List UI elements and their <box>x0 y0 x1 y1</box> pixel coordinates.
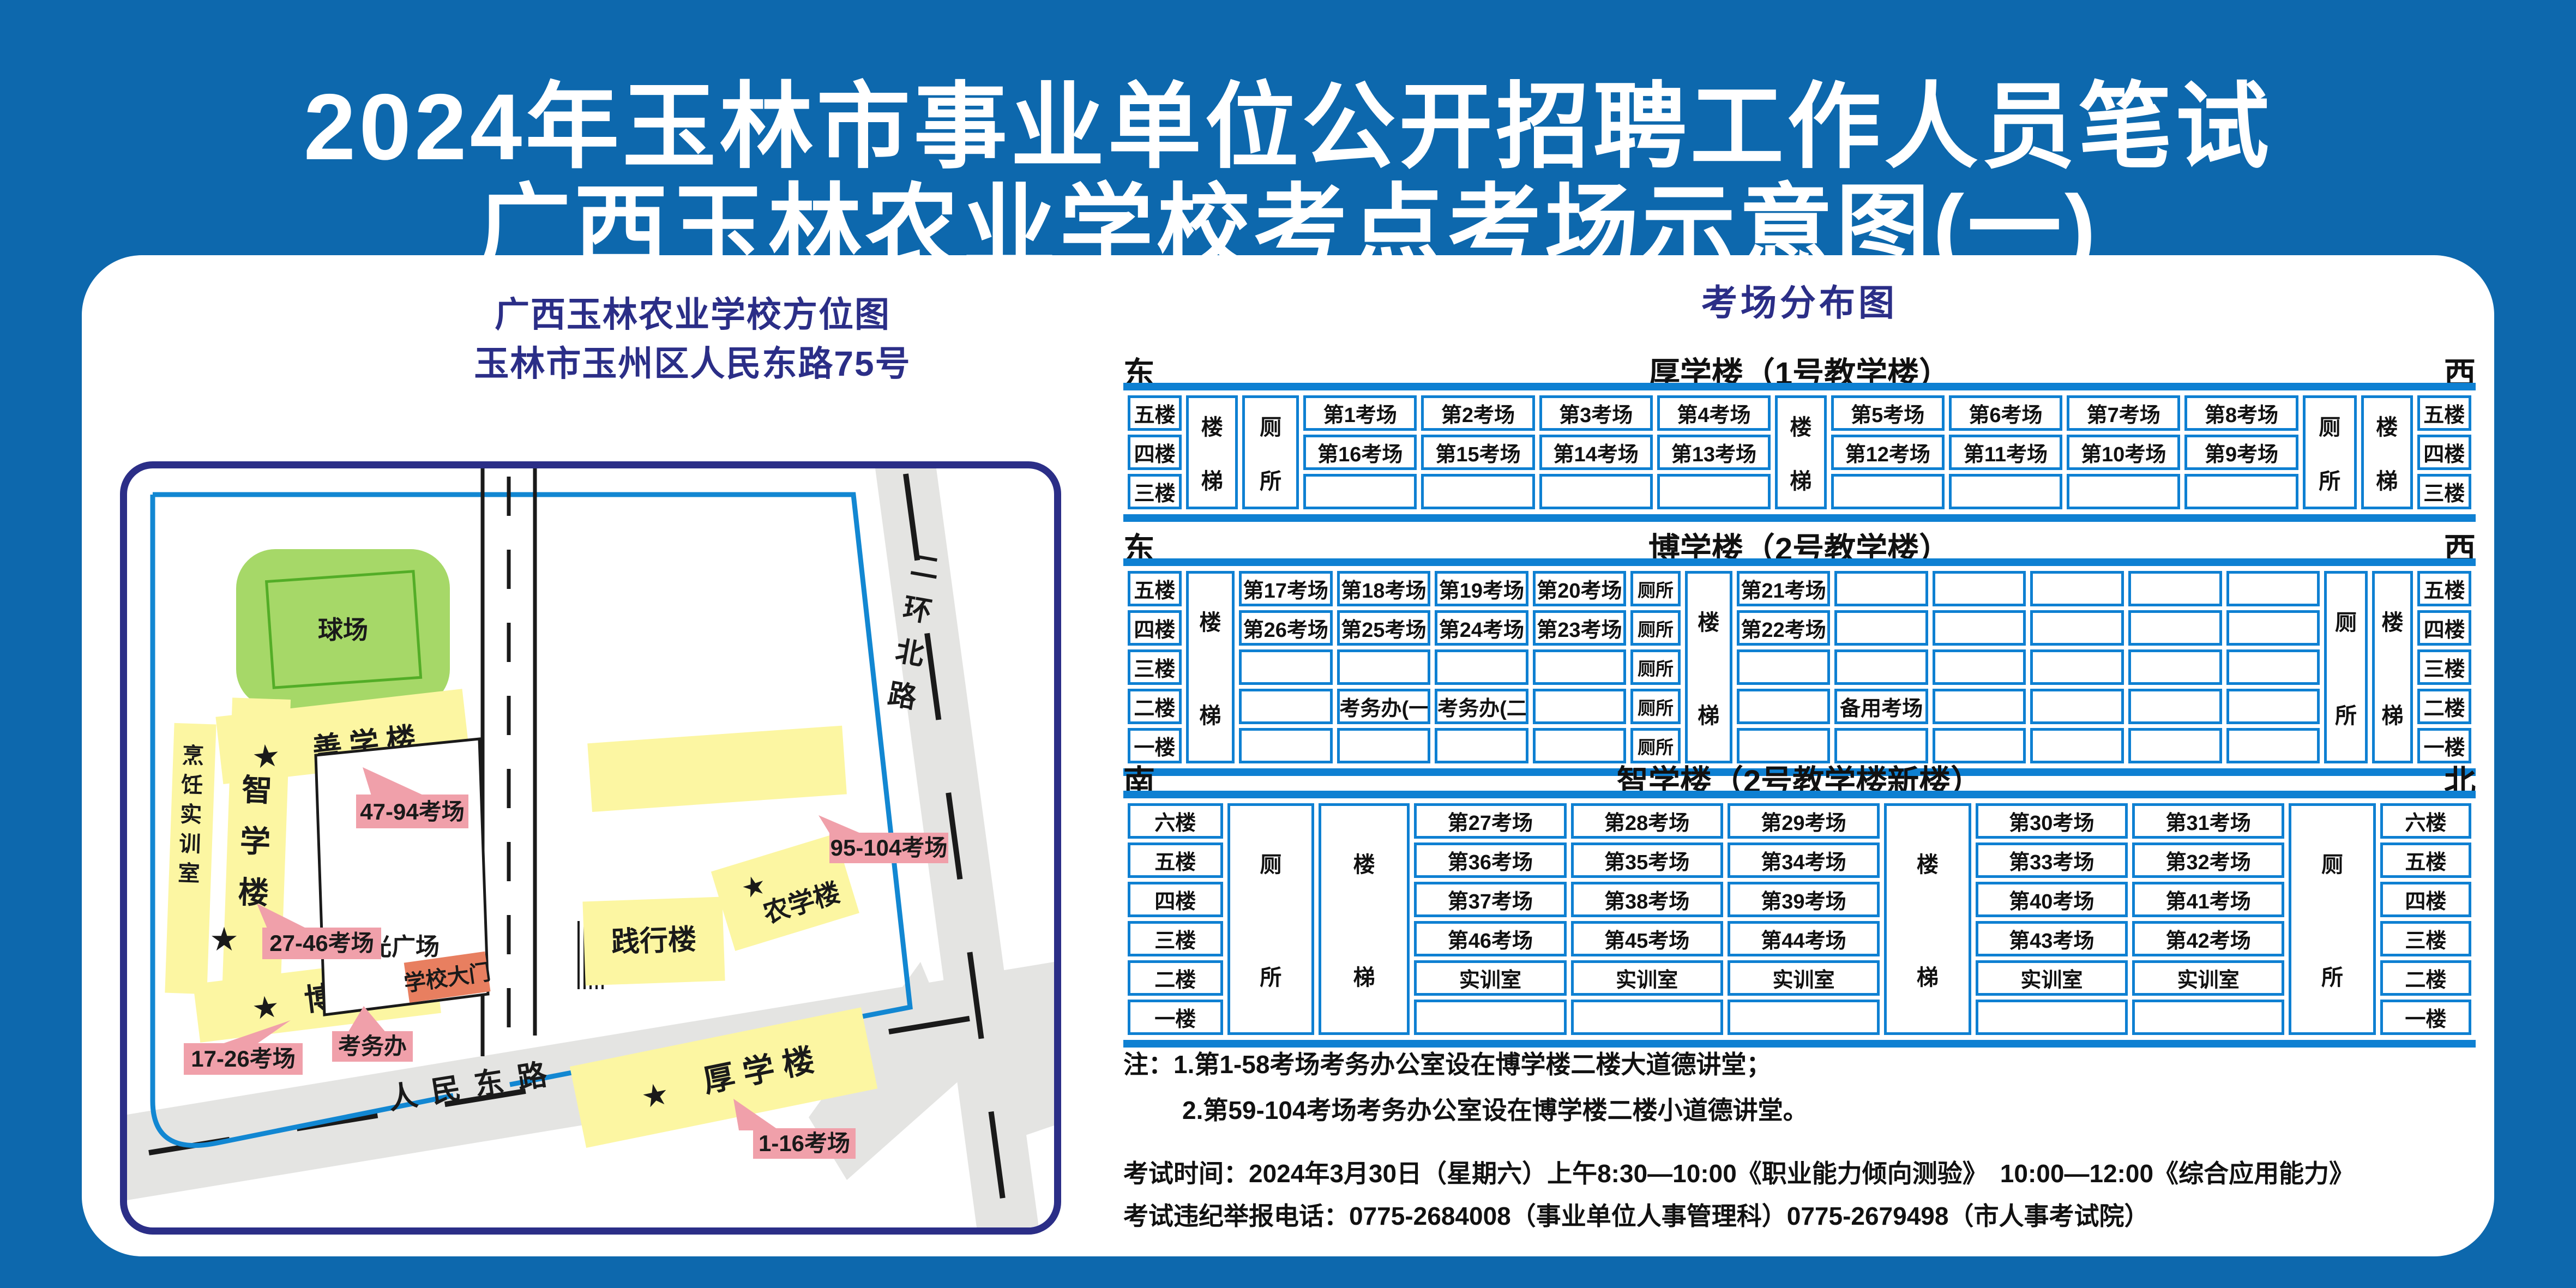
svg-text:1-16考场: 1-16考场 <box>759 1130 850 1156</box>
table-cell: 第5考场 <box>1831 395 1945 431</box>
table-cell: 第35考场 <box>1571 842 1723 878</box>
table-cell: 四楼 <box>1128 610 1182 646</box>
table-3-grid: 六楼厕所楼梯第27考场第28考场第29考场楼梯第30考场第31考场厕所六楼五楼第… <box>1123 791 2476 1048</box>
table-cell <box>2226 689 2320 724</box>
table-cell: 第14考场 <box>1539 435 1653 470</box>
table-cell: 第46考场 <box>1414 921 1566 956</box>
table-cell: 第38考场 <box>1571 882 1723 917</box>
table-cell: 第30考场 <box>1976 803 2128 839</box>
table-cell <box>2132 1000 2284 1035</box>
table-cell: 三楼 <box>1128 474 1182 509</box>
content-panel: 广西玉林农业学校方位图 玉林市玉州区人民东路75号 <box>82 255 2494 1256</box>
table-cell <box>1976 1000 2128 1035</box>
table-cell: 第3考场 <box>1539 395 1653 431</box>
table-cell: 第11考场 <box>1949 435 2062 470</box>
table-cell: 实训室 <box>1571 960 1723 996</box>
table-cell: 一楼 <box>1128 1000 1223 1035</box>
table-cell <box>1539 474 1653 509</box>
table-cell <box>1337 649 1431 685</box>
table-cell: 第34考场 <box>1728 842 1880 878</box>
table-cell <box>1414 1000 1566 1035</box>
table-cell <box>1239 689 1333 724</box>
table-cell: 楼梯 <box>2361 395 2413 509</box>
table-cell: 第2考场 <box>1421 395 1534 431</box>
table-cell <box>2030 610 2124 646</box>
jianxing-building: 践行楼 <box>582 897 725 986</box>
table-cell: 第37考场 <box>1414 882 1566 917</box>
table-cell: 第27考场 <box>1414 803 1566 839</box>
svg-text:47-94考场: 47-94考场 <box>360 799 464 824</box>
table-cell: 厕所 <box>2289 803 2376 1035</box>
table-cell: 三楼 <box>1128 921 1223 956</box>
table-cell: 第21考场 <box>1737 571 1831 606</box>
table-cell: 第6考场 <box>1949 395 2062 431</box>
table-cell: 楼梯 <box>1775 395 1827 509</box>
table-cell: 第10考场 <box>2067 435 2180 470</box>
table-cell: 实训室 <box>2132 960 2284 996</box>
table-cell: 实训室 <box>1414 960 1566 996</box>
table-cell: 第33考场 <box>1976 842 2128 878</box>
table-cell: 楼梯 <box>1186 395 1238 509</box>
table-cell: 第40考场 <box>1976 882 2128 917</box>
table-cell: 一楼 <box>2380 1000 2471 1035</box>
shanxue-star-icon: ★ <box>250 737 282 775</box>
table-cell <box>1737 649 1831 685</box>
exam-time-line: 考试时间：2024年3月30日（星期六）上午8:30—10:00《职业能力倾向测… <box>1123 1154 2476 1190</box>
table-cell: 第44考场 <box>1728 921 1880 956</box>
table-cell: 三楼 <box>2417 649 2471 685</box>
ball-field-label: 球场 <box>318 616 368 644</box>
table-cell: 三楼 <box>2417 474 2471 509</box>
table-1-grid: 五楼楼梯厕所第1考场第2考场第3考场第4考场楼梯第5考场第6考场第7考场第8考场… <box>1123 383 2476 522</box>
table-cell: 第13考场 <box>1657 435 1771 470</box>
table-cell: 二楼 <box>2417 689 2471 724</box>
table-cell: 第16考场 <box>1303 435 1417 470</box>
table-cell: 第43考场 <box>1976 921 2128 956</box>
table-cell: 第18考场 <box>1337 571 1431 606</box>
table-cell: 第1考场 <box>1303 395 1417 431</box>
table-cell: 第20考场 <box>1533 571 1627 606</box>
table-cell: 备用考场 <box>1834 689 1928 724</box>
table-cell <box>1933 610 2026 646</box>
table-cell <box>1834 649 1928 685</box>
table-cell: 第25考场 <box>1337 610 1431 646</box>
table-cell: 厕所 <box>1630 689 1681 724</box>
table-cell <box>1571 1000 1723 1035</box>
svg-text:考务办: 考务办 <box>338 1033 407 1059</box>
table-cell <box>2226 610 2320 646</box>
table-cell: 第24考场 <box>1435 610 1528 646</box>
table-cell: 二楼 <box>1128 960 1223 996</box>
table-cell: 厕所 <box>1630 571 1681 606</box>
table-cell <box>1435 649 1528 685</box>
table-cell: 二楼 <box>1128 689 1182 724</box>
table-cell <box>2067 474 2180 509</box>
table-cell: 第36考场 <box>1414 842 1566 878</box>
table-cell: 四楼 <box>2380 882 2471 917</box>
table-cell: 第41考场 <box>2132 882 2284 917</box>
table-cell: 六楼 <box>1128 803 1223 839</box>
table-cell: 二楼 <box>2380 960 2471 996</box>
table-cell: 第9考场 <box>2184 435 2298 470</box>
table-cell: 第31考场 <box>2132 803 2284 839</box>
table-cell: 四楼 <box>1128 882 1223 917</box>
table-cell <box>2030 689 2124 724</box>
table-cell: 实训室 <box>1976 960 2128 996</box>
table-cell <box>2030 571 2124 606</box>
table-cell: 第22考场 <box>1737 610 1831 646</box>
table-cell: 五楼 <box>1128 571 1182 606</box>
table-cell <box>2226 649 2320 685</box>
map-title-line2: 玉林市玉州区人民东路75号 <box>213 336 1172 386</box>
table-cell: 厕所 <box>1630 649 1681 685</box>
jianxing-label: 践行楼 <box>611 924 697 958</box>
table-cell: 楼梯 <box>1186 571 1235 763</box>
table-cell: 第4考场 <box>1657 395 1771 431</box>
boxue-star-icon: ★ <box>250 989 282 1026</box>
table-cell <box>1239 649 1333 685</box>
table-cell <box>1657 474 1771 509</box>
table-cell <box>1728 1000 1880 1035</box>
svg-text:27-46考场: 27-46考场 <box>269 930 374 956</box>
table-cell: 第29考场 <box>1728 803 1880 839</box>
table-cell: 考务办(一) <box>1337 689 1431 724</box>
table-cell <box>2128 649 2222 685</box>
table-cell: 厕所 <box>2303 395 2357 509</box>
table-cell: 厕所 <box>2324 571 2368 763</box>
table-cell: 厕所 <box>1227 803 1315 1035</box>
table-cell: 厕所 <box>1242 395 1299 509</box>
table-cell <box>1303 474 1417 509</box>
table-cell <box>1834 571 1928 606</box>
table-cell: 考务办(二) <box>1435 689 1528 724</box>
table-2-grid: 五楼楼梯第17考场第18考场第19考场第20考场厕所楼梯第21考场厕所楼梯五楼四… <box>1123 558 2476 776</box>
table-cell <box>1933 571 2026 606</box>
table-cell: 四楼 <box>2417 435 2471 470</box>
table-cell <box>2030 649 2124 685</box>
map-title-line1: 广西玉林农业学校方位图 <box>213 287 1172 337</box>
table-cell: 第19考场 <box>1435 571 1528 606</box>
unnamed-building <box>587 726 847 812</box>
table-cell: 六楼 <box>2380 803 2471 839</box>
table-cell: 第23考场 <box>1533 610 1627 646</box>
table-cell: 五楼 <box>1128 395 1182 431</box>
table-cell: 第45考场 <box>1571 921 1723 956</box>
table-cell <box>2128 571 2222 606</box>
table-cell: 五楼 <box>2380 842 2471 878</box>
table-cell: 厕所 <box>1630 610 1681 646</box>
table-cell: 实训室 <box>1728 960 1880 996</box>
table-cell: 四楼 <box>1128 435 1182 470</box>
table-cell: 三楼 <box>2380 921 2471 956</box>
table-cell: 第7考场 <box>2067 395 2180 431</box>
table-cell: 第26考场 <box>1239 610 1333 646</box>
table-cell: 四楼 <box>2417 610 2471 646</box>
svg-text:95-104考场: 95-104考场 <box>830 835 948 860</box>
table-cell <box>2184 474 2298 509</box>
table-cell: 楼梯 <box>2372 571 2413 763</box>
table-cell: 五楼 <box>2417 395 2471 431</box>
table-cell: 楼梯 <box>1319 803 1410 1035</box>
svg-text:17-26考场: 17-26考场 <box>191 1046 295 1072</box>
table-cell: 五楼 <box>1128 842 1223 878</box>
table-cell: 第12考场 <box>1831 435 1945 470</box>
cooking-building-label: 烹饪实训室 <box>170 743 207 892</box>
table-cell: 第42考场 <box>2132 921 2284 956</box>
table-cell: 第28考场 <box>1571 803 1723 839</box>
table-cell: 五楼 <box>2417 571 2471 606</box>
distribution-section: 考场分布图 东厚学楼（1号教学楼）西五楼楼梯厕所第1考场第2考场第3考场第4考场… <box>1123 266 2476 1248</box>
table-cell: 第39考场 <box>1728 882 1880 917</box>
table-cell <box>1831 474 1945 509</box>
table-cell <box>2128 689 2222 724</box>
table-cell <box>1933 649 2026 685</box>
report-phone-line: 考试违纪举报电话：0775-2684008（事业单位人事管理科）0775-267… <box>1123 1196 2476 1232</box>
table-cell <box>1737 689 1831 724</box>
table-cell: 第15考场 <box>1421 435 1534 470</box>
zhixue-building-label: 智学楼 <box>228 773 278 929</box>
note-line-2: 2.第59-104考场考务办公室设在博学楼二楼小道德讲堂。 <box>1123 1091 2535 1127</box>
note-line-1: 注：1.第1-58考场考务办公室设在博学楼二楼大道德讲堂； <box>1123 1045 2476 1081</box>
table-cell <box>1933 689 2026 724</box>
table-cell <box>1421 474 1534 509</box>
table-cell: 第32考场 <box>2132 842 2284 878</box>
table-cell <box>1834 610 1928 646</box>
table-cell <box>1533 649 1627 685</box>
table-cell <box>2128 610 2222 646</box>
distribution-title: 考场分布图 <box>1123 274 2476 326</box>
table-cell <box>1533 689 1627 724</box>
table-cell: 三楼 <box>1128 649 1182 685</box>
campus-map: 球场 ★ 善学楼 ★ 博 学 楼 ★ 厚 学 楼 <box>120 461 1061 1235</box>
table-cell: 第8考场 <box>2184 395 2298 431</box>
table-cell: 第17考场 <box>1239 571 1333 606</box>
table-cell <box>1949 474 2062 509</box>
table-cell: 楼梯 <box>1685 571 1732 763</box>
table-cell <box>2226 571 2320 606</box>
table-cell: 楼梯 <box>1884 803 1971 1035</box>
